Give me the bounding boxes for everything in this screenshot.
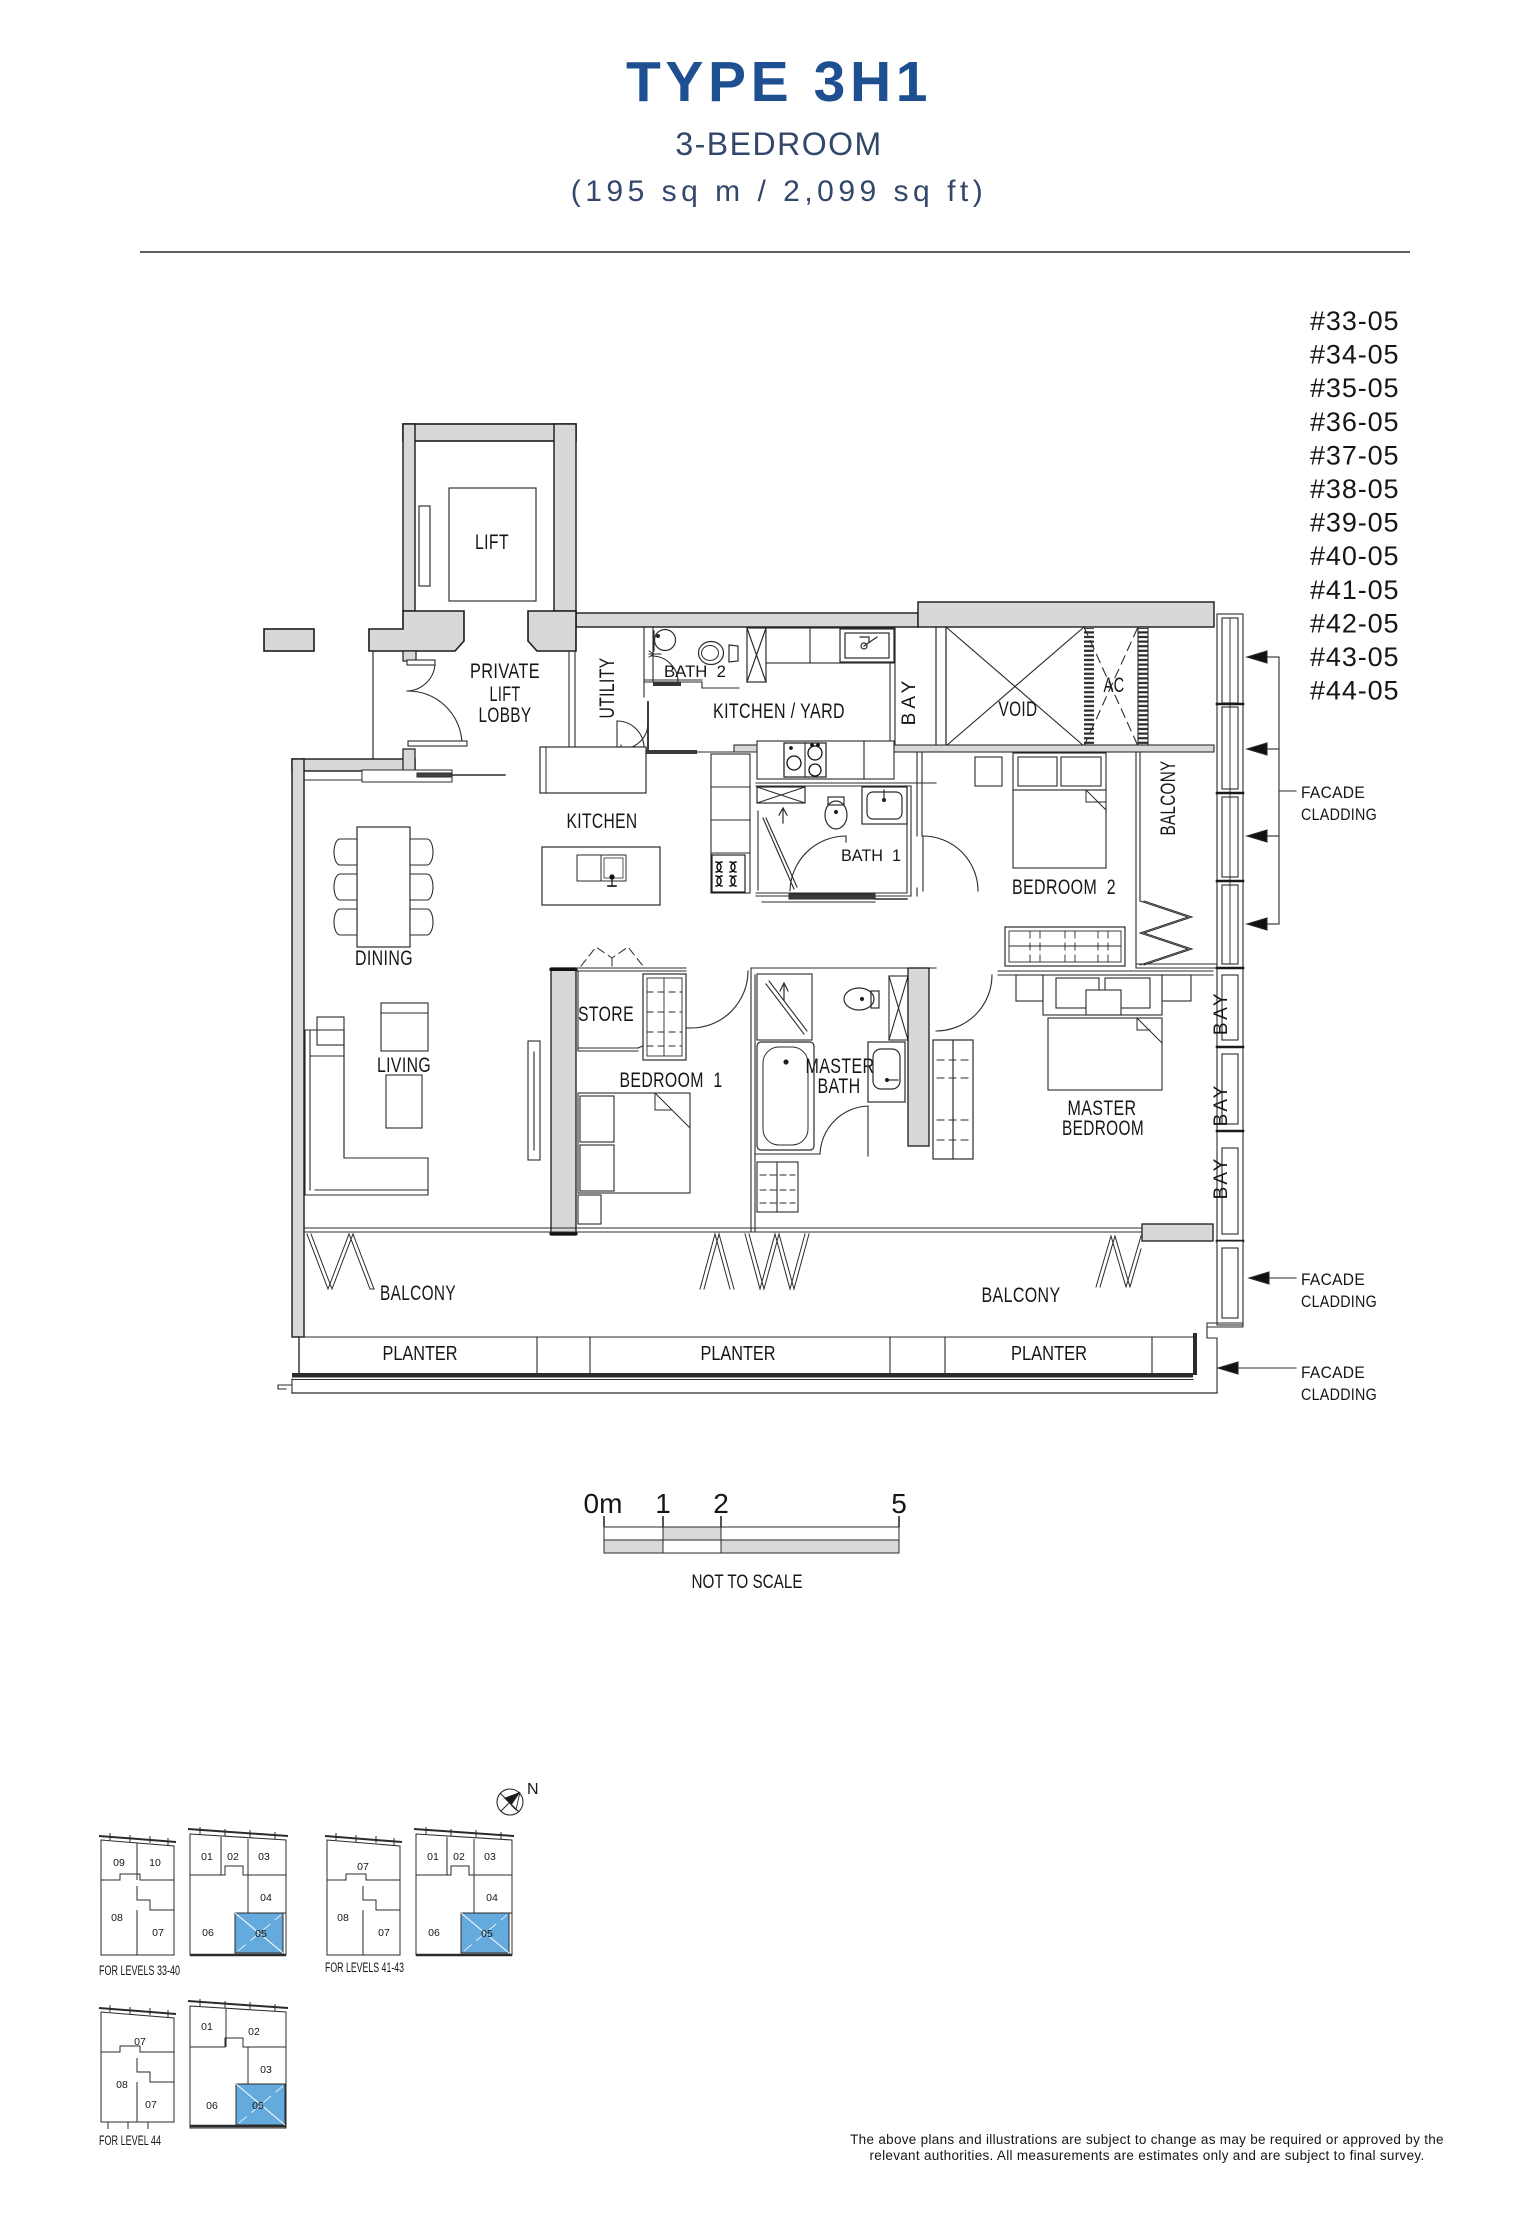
svg-text:#41-05: #41-05 [1310,575,1399,605]
svg-text:#33-05: #33-05 [1310,306,1399,336]
svg-text:08: 08 [111,1912,123,1924]
svg-text:3-BEDROOM: 3-BEDROOM [675,126,882,162]
svg-text:CLADDING: CLADDING [1301,1386,1377,1404]
svg-text:08: 08 [116,2079,128,2091]
svg-text:FACADE: FACADE [1301,1271,1365,1289]
svg-text:#42-05: #42-05 [1310,608,1399,638]
svg-text:BATH: BATH [818,1075,861,1098]
svg-text:04: 04 [486,1892,498,1904]
svg-text:#38-05: #38-05 [1310,474,1399,504]
svg-text:01: 01 [201,2021,213,2033]
svg-text:FACADE: FACADE [1301,1364,1365,1382]
svg-text:The above plans and illustrati: The above plans and illustrations are su… [850,2132,1444,2147]
svg-text:BEDROOM 1: BEDROOM 1 [620,1069,723,1092]
svg-text:03: 03 [258,1851,270,1863]
svg-text:#43-05: #43-05 [1310,642,1399,672]
svg-text:BALCONY: BALCONY [982,1284,1061,1307]
svg-text:#35-05: #35-05 [1310,373,1399,403]
svg-text:BAY: BAY [1211,991,1232,1035]
svg-text:CLADDING: CLADDING [1301,806,1377,824]
svg-text:10: 10 [149,1857,161,1869]
svg-text:#36-05: #36-05 [1310,407,1399,437]
svg-text:KITCHEN: KITCHEN [567,810,638,833]
svg-text:BALCONY: BALCONY [1157,761,1180,836]
svg-text:relevant authorities. All meas: relevant authorities. All measurements a… [869,2148,1424,2163]
svg-text:02: 02 [453,1851,465,1863]
svg-text:BEDROOM: BEDROOM [1062,1117,1144,1140]
svg-text:03: 03 [484,1851,496,1863]
svg-text:PLANTER: PLANTER [701,1343,776,1365]
svg-text:07: 07 [152,1927,164,1939]
svg-text:1: 1 [655,1488,671,1519]
svg-text:LIFT: LIFT [475,531,509,554]
svg-text:BAY: BAY [1211,1084,1232,1127]
svg-text:06: 06 [202,1927,214,1939]
svg-text:UTILITY: UTILITY [596,658,619,719]
svg-text:05: 05 [252,2100,264,2112]
svg-text:PLANTER: PLANTER [1011,1343,1087,1365]
svg-text:2: 2 [713,1488,729,1519]
svg-text:06: 06 [428,1927,440,1939]
svg-text:02: 02 [248,2026,260,2038]
svg-text:FOR LEVEL 44: FOR LEVEL 44 [99,2133,161,2148]
svg-text:FOR LEVELS 33-40: FOR LEVELS 33-40 [99,1963,180,1978]
svg-text:04: 04 [260,1892,272,1904]
svg-text:FACADE: FACADE [1301,784,1365,802]
svg-text:BATH 2: BATH 2 [664,663,726,681]
svg-text:BEDROOM 2: BEDROOM 2 [1012,876,1116,899]
svg-text:BATH 1: BATH 1 [841,847,901,865]
svg-text:05: 05 [481,1928,493,1940]
svg-text:07: 07 [357,1861,369,1873]
svg-text:#37-05: #37-05 [1310,440,1399,470]
svg-text:DINING: DINING [355,947,413,970]
svg-text:03: 03 [260,2064,272,2076]
svg-text:STORE: STORE [578,1003,634,1026]
svg-text:KITCHEN / YARD: KITCHEN / YARD [713,700,845,723]
svg-text:BALCONY: BALCONY [380,1282,456,1305]
svg-text:07: 07 [134,2036,146,2048]
svg-text:#39-05: #39-05 [1310,508,1399,538]
svg-text:#34-05: #34-05 [1310,340,1399,370]
svg-text:PLANTER: PLANTER [383,1343,458,1365]
svg-text:CLADDING: CLADDING [1301,1293,1377,1311]
svg-text:BAY: BAY [1211,1157,1232,1200]
svg-text:05: 05 [255,1928,267,1940]
svg-text:LIFT: LIFT [490,683,521,706]
svg-text:08: 08 [337,1912,349,1924]
svg-text:0m: 0m [584,1488,623,1519]
svg-text:5: 5 [891,1488,907,1519]
svg-text:06: 06 [206,2100,218,2112]
svg-text:01: 01 [201,1851,213,1863]
svg-text:FOR LEVELS 41-43: FOR LEVELS 41-43 [325,1960,404,1975]
svg-text:07: 07 [145,2099,157,2111]
svg-text:07: 07 [378,1927,390,1939]
svg-text:02: 02 [227,1851,239,1863]
svg-text:AC: AC [1104,674,1125,697]
svg-text:BAY: BAY [899,677,920,726]
svg-text:09: 09 [113,1857,125,1869]
svg-text:LIVING: LIVING [377,1054,431,1077]
svg-text:N: N [527,1781,539,1798]
svg-text:VOID: VOID [999,698,1038,721]
svg-text:TYPE 3H1: TYPE 3H1 [626,50,932,114]
svg-text:#40-05: #40-05 [1310,541,1399,571]
svg-text:PRIVATE: PRIVATE [470,660,540,683]
svg-text:(195 sq m / 2,099 sq ft): (195 sq m / 2,099 sq ft) [571,175,987,208]
svg-text:NOT TO SCALE: NOT TO SCALE [692,1572,803,1593]
svg-text:01: 01 [427,1851,439,1863]
svg-text:LOBBY: LOBBY [479,704,532,727]
svg-text:#44-05: #44-05 [1310,676,1399,706]
